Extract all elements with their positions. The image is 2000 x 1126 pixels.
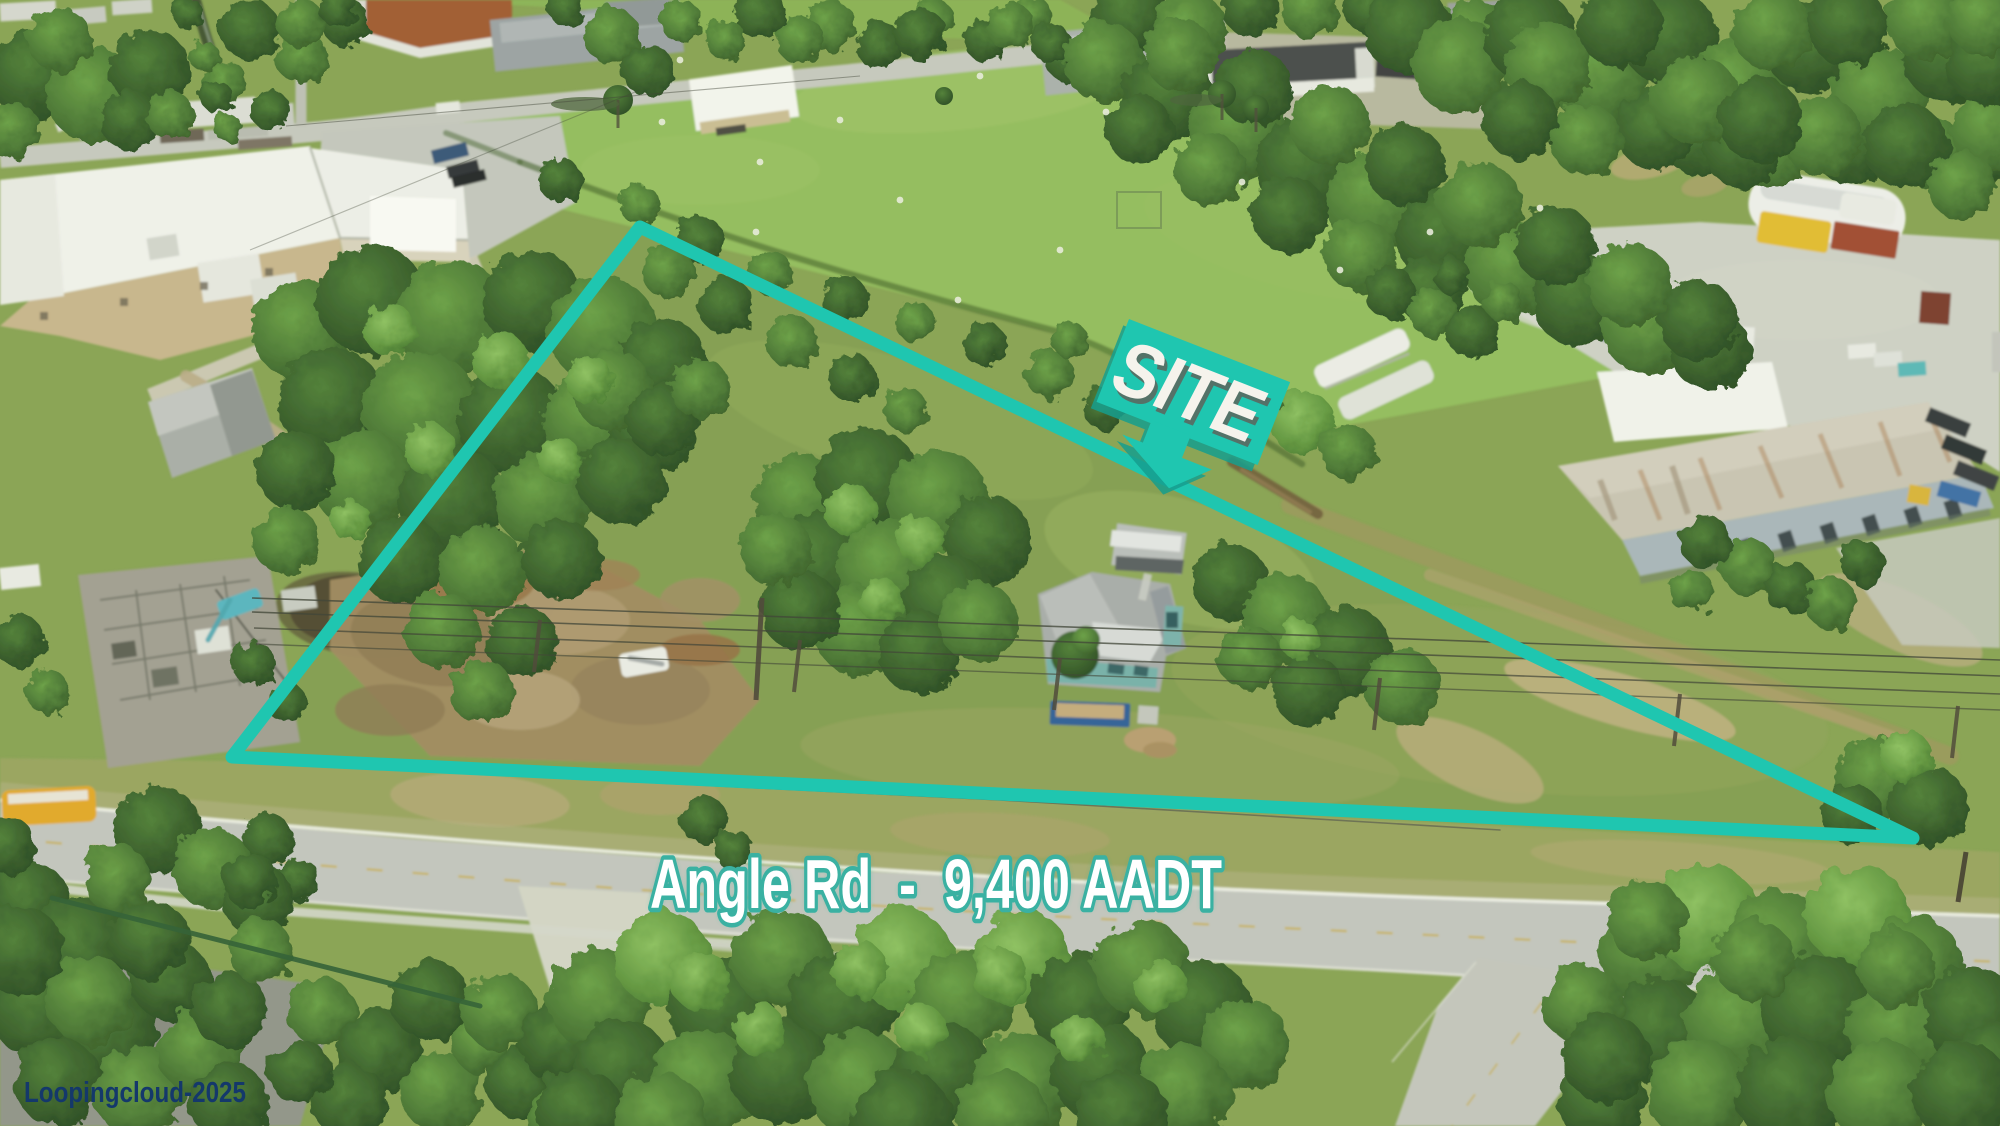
svg-text:Loopingcloud-2025: Loopingcloud-2025 xyxy=(24,1077,246,1109)
svg-text:Angle Rd - 9,400 AADT: Angle Rd - 9,400 AADT xyxy=(650,845,1222,923)
